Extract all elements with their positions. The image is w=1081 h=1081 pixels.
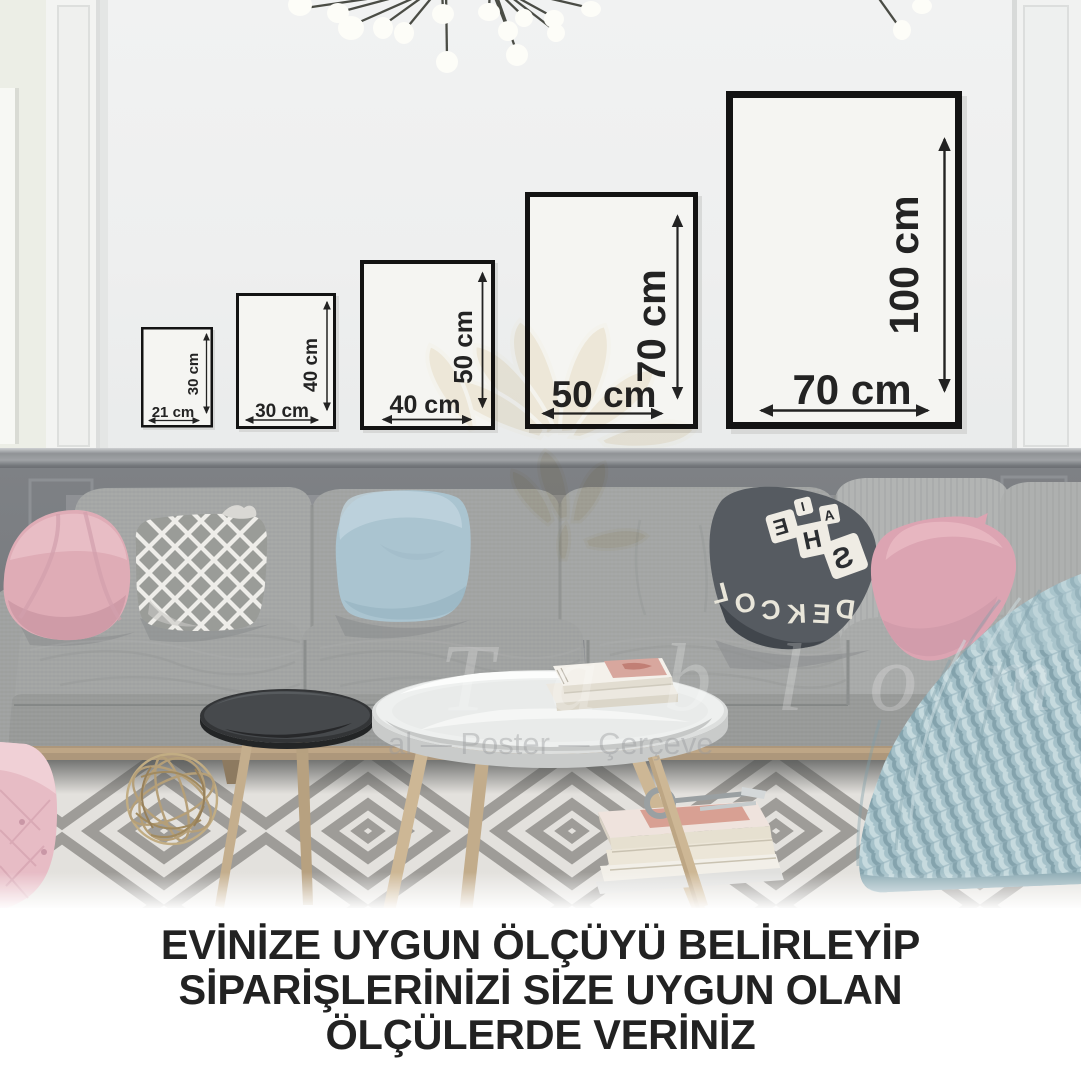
svg-text:70 cm: 70 cm bbox=[792, 366, 911, 413]
svg-text:100 cm: 100 cm bbox=[881, 195, 927, 334]
svg-text:C: C bbox=[759, 594, 782, 626]
svg-text:40 cm: 40 cm bbox=[301, 338, 322, 392]
svg-text:70 cm: 70 cm bbox=[630, 269, 674, 382]
svg-text:21 cm: 21 cm bbox=[152, 404, 195, 421]
svg-text:30 cm: 30 cm bbox=[255, 401, 309, 422]
svg-text:al — Poster — Çerçeve: al — Poster — Çerçeve bbox=[388, 726, 714, 761]
svg-text:30 cm: 30 cm bbox=[185, 353, 202, 396]
svg-text:D: D bbox=[834, 593, 857, 625]
